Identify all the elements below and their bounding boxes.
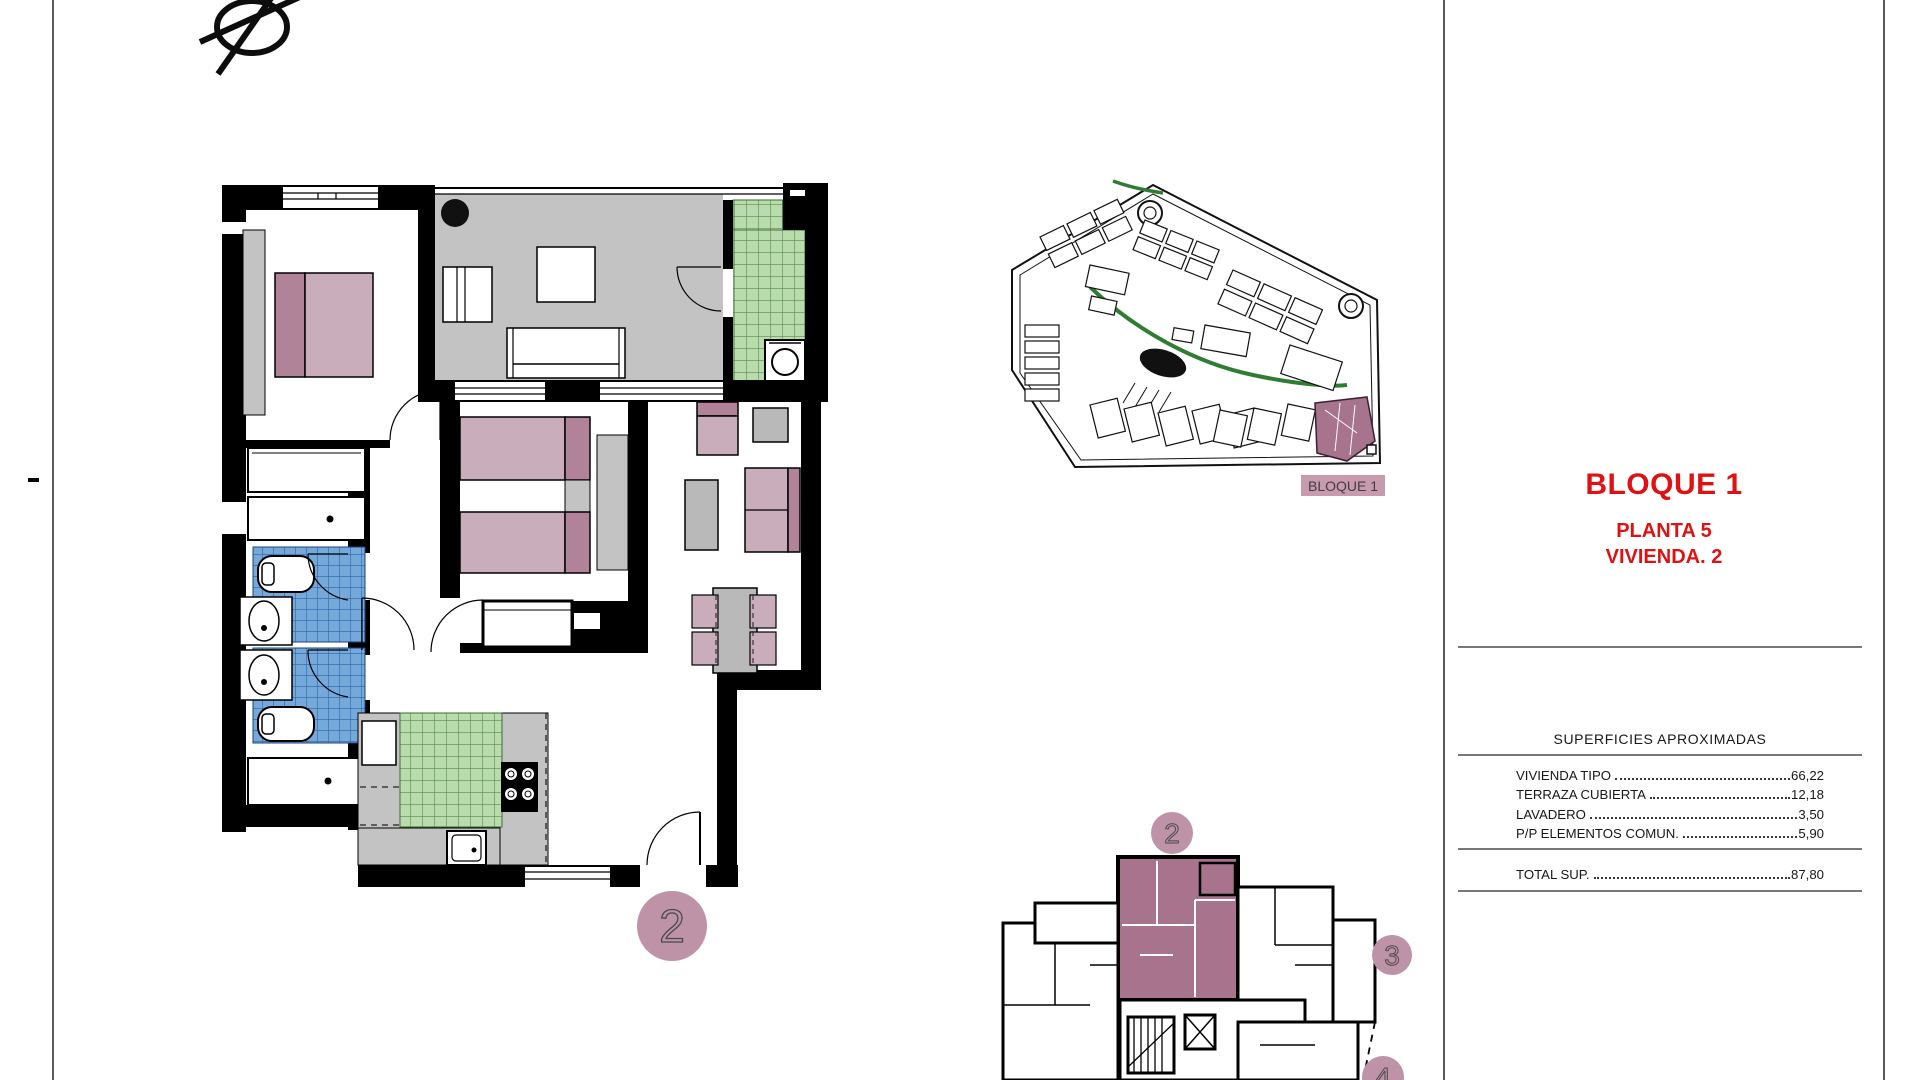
keyplan-unit-circle-2: 2 [1151, 812, 1193, 854]
dot-leader [1615, 778, 1790, 780]
dot-leader [1590, 817, 1797, 819]
unit-number-badge: 2 [637, 891, 707, 961]
surfaces-table: SUPERFICIES APROXIMADAS VIVIENDA TIPO 66… [1458, 731, 1862, 892]
double-bed [275, 273, 373, 377]
sink-icon [240, 650, 292, 700]
key-plan: 2 3 4 [995, 805, 1425, 1080]
entrance-door [647, 812, 700, 865]
sink-icon [447, 831, 486, 865]
toilet-icon [258, 707, 314, 741]
dot-leader [1594, 877, 1790, 879]
keyplan-unit-circle-4: 4 [1362, 1056, 1404, 1080]
row-value: 12,18 [1791, 787, 1824, 802]
bathroom-closet [248, 448, 365, 492]
row-label: VIVIENDA TIPO [1516, 768, 1614, 783]
north-arrow-icon [190, 0, 320, 78]
table-rule [1458, 890, 1862, 892]
table-row: LAVADERO 3,50 [1516, 802, 1824, 822]
stove-icon [501, 762, 538, 812]
table-row: P/P ELEMENTOS COMUN. 5,90 [1516, 822, 1824, 842]
plant-icon [441, 199, 469, 227]
row-label: P/P ELEMENTOS COMUN. [1516, 826, 1682, 841]
kitchen [358, 713, 548, 865]
bathroom-2 [240, 648, 365, 743]
bloque-label: BLOQUE 1 [1301, 475, 1385, 496]
total-label: TOTAL SUP. [1516, 867, 1593, 882]
side-table [753, 408, 788, 442]
stairwell [1128, 1017, 1174, 1073]
fridge [362, 721, 396, 765]
row-value: 5,90 [1798, 826, 1824, 841]
table-row: TERRAZA CUBIERTA 12,18 [1516, 783, 1824, 803]
bathtub-1 [248, 497, 365, 540]
total-value: 87,80 [1791, 867, 1824, 882]
single-bed [460, 417, 590, 480]
terrace-bench [507, 328, 625, 378]
bathroom-1 [240, 547, 365, 645]
washing-machine-icon [765, 340, 805, 382]
highlighted-block [1315, 397, 1376, 461]
title-block-right-border [1883, 0, 1885, 1080]
elevator [1185, 1015, 1215, 1049]
bloque-label-text: BLOQUE 1 [1308, 478, 1378, 494]
dining-table [692, 588, 776, 673]
keyplan-unit-2-highlight [1118, 857, 1238, 1000]
wardrobe [483, 601, 572, 647]
master-bedroom [243, 230, 373, 415]
armchair [697, 402, 738, 455]
table-row: VIVIENDA TIPO 66,22 [1516, 763, 1824, 783]
svg-text:2: 2 [1164, 818, 1180, 849]
coffee-table [685, 480, 718, 550]
row-label: LAVADERO [1516, 807, 1589, 822]
living-room [685, 402, 800, 552]
floor-subtitle: PLANTA 5 [1445, 520, 1883, 543]
block-title: BLOQUE 1 [1445, 468, 1883, 502]
row-value: 66,22 [1791, 768, 1824, 783]
terrace-table [537, 247, 595, 302]
surfaces-table-header: SUPERFICIES APROXIMADAS [1458, 731, 1862, 747]
terrace-chair [443, 267, 492, 322]
table-total-row: TOTAL SUP. 87,80 [1516, 862, 1824, 882]
unit-number: 2 [659, 900, 685, 952]
svg-text:4: 4 [1375, 1062, 1391, 1080]
dwelling-subtitle: VIVIENDA. 2 [1445, 546, 1883, 569]
row-label: TERRAZA CUBIERTA [1516, 787, 1649, 802]
title-divider [1458, 646, 1862, 648]
single-bed [460, 512, 590, 573]
site-plan: BLOQUE 1 [995, 175, 1405, 503]
sofa [745, 468, 800, 552]
floor-plan: 2 [218, 180, 836, 970]
row-value: 3,50 [1798, 807, 1824, 822]
toilet-icon [258, 556, 314, 592]
left-sheet-border [52, 0, 54, 1080]
svg-text:3: 3 [1384, 940, 1400, 971]
sink-icon [240, 597, 292, 645]
drawing-sheet: 2 [0, 0, 1920, 1080]
dot-leader [1683, 836, 1797, 838]
dot-leader [1650, 797, 1790, 799]
bathtub-2 [248, 758, 368, 805]
keyplan-unit-circle-3: 3 [1372, 935, 1412, 975]
margin-tick [28, 478, 39, 482]
